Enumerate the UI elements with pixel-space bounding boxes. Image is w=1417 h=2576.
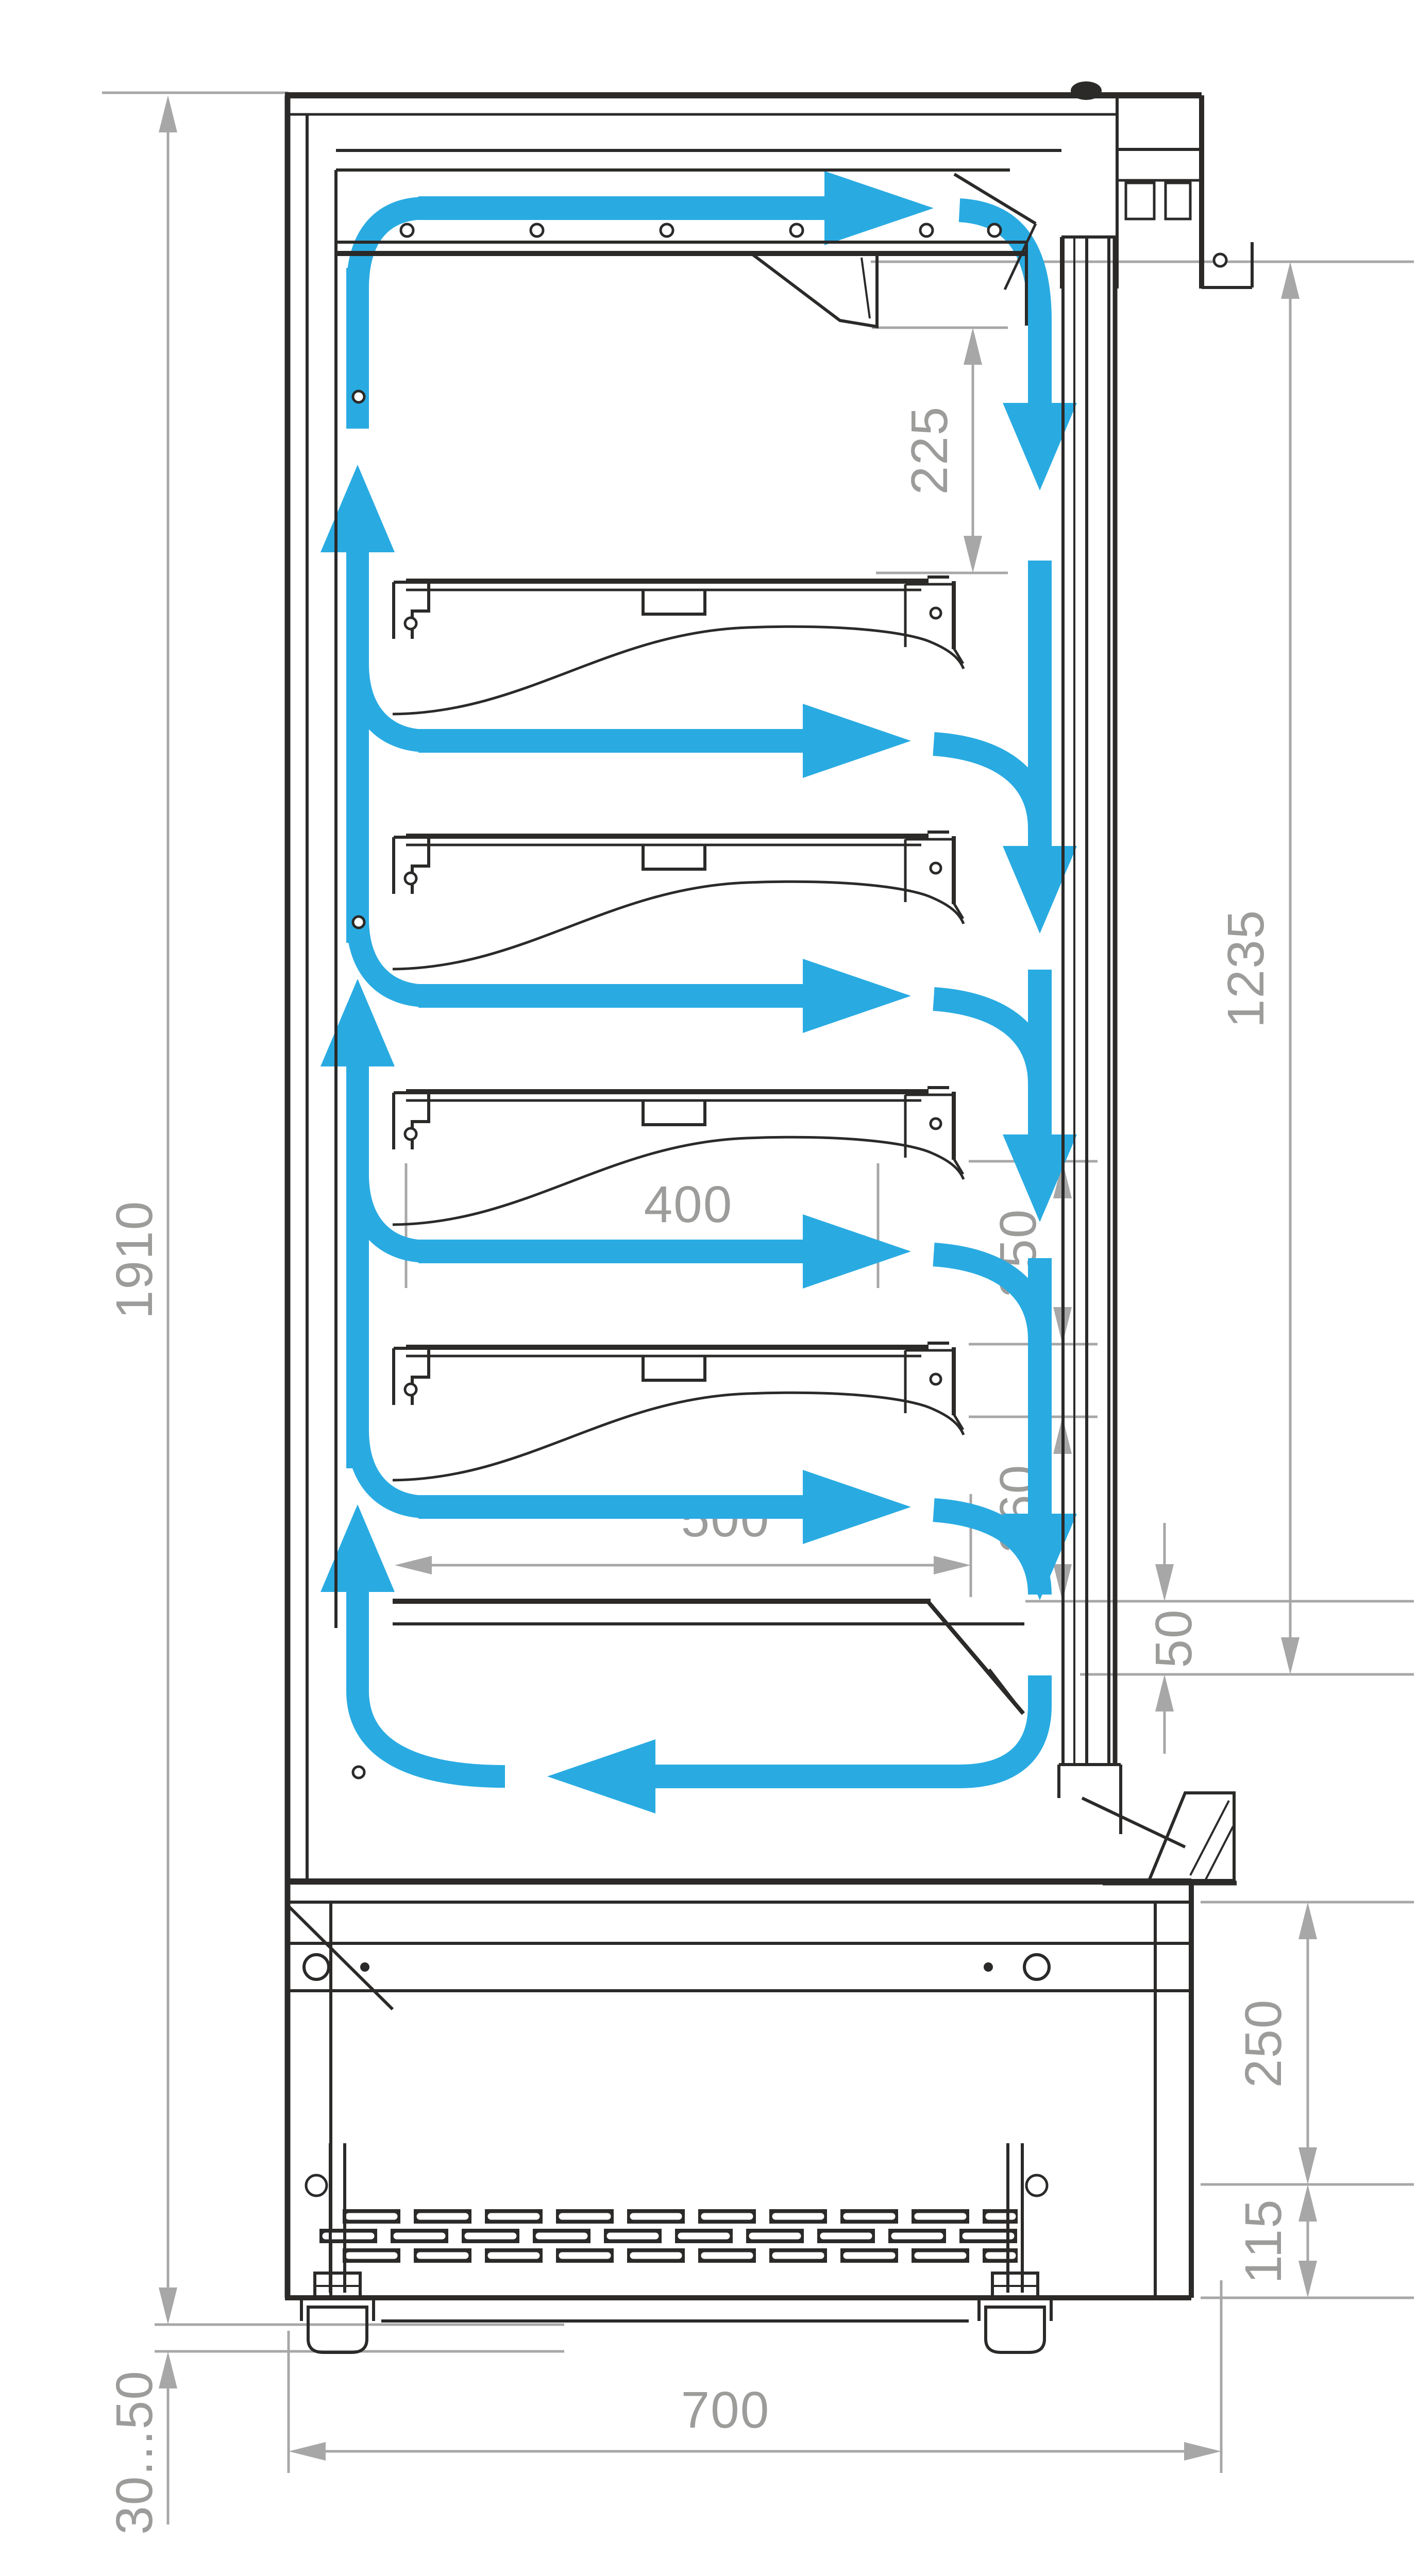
arrow-up-icon xyxy=(320,465,395,552)
bolt-icon xyxy=(306,2175,327,2196)
dimension-label: 30...50 xyxy=(106,2370,163,2535)
glass-door xyxy=(1063,237,1115,1765)
canopy-light-baffle xyxy=(751,253,877,327)
dimension-base-height: 250 xyxy=(1201,1902,1414,2184)
dimension-layer: 1910 30...50 700 225 1235 xyxy=(102,93,1414,2535)
bolt-icon xyxy=(1026,2175,1047,2196)
airflow-supply-duct xyxy=(358,171,1040,320)
airflow-air-curtain xyxy=(1003,320,1077,1600)
dimension-foot-range: 30...50 xyxy=(106,2351,564,2535)
door-top-frame xyxy=(1061,81,1252,289)
shelf-1 xyxy=(393,577,964,714)
drawing-canvas: 1910 30...50 700 225 1235 xyxy=(0,0,1417,2576)
dimension-label: 1910 xyxy=(106,1200,163,1319)
dimension-label: 400 xyxy=(644,1176,733,1233)
dimension-label: 250 xyxy=(1235,1999,1292,2088)
structure-layer xyxy=(285,81,1252,2352)
arrow-down-icon xyxy=(1003,403,1077,490)
dimension-label: 1235 xyxy=(1217,909,1275,1028)
bolt-icon xyxy=(304,1955,329,1979)
arrow-right-icon xyxy=(824,171,934,245)
dimension-label: 50 xyxy=(1145,1608,1203,1668)
arrow-left-icon xyxy=(547,1739,655,1814)
corner-brace xyxy=(289,1906,393,2009)
airflow-layer xyxy=(320,171,1077,1814)
rivet-icon xyxy=(360,1962,369,1972)
dimension-return-gap: 50 xyxy=(1145,1523,1203,1754)
cross-section-diagram: 1910 30...50 700 225 1235 xyxy=(0,0,1417,2576)
dimension-canopy-to-shelf: 225 xyxy=(872,328,1008,573)
shelf-2 xyxy=(393,832,964,969)
airflow-shelf-1 xyxy=(358,664,1040,828)
vent-grille xyxy=(319,2216,1018,2256)
dimension-label: 225 xyxy=(901,406,958,495)
airflow-return xyxy=(358,1675,1040,1814)
arrow-down-icon xyxy=(1003,846,1077,934)
hinge-pin-icon xyxy=(1071,81,1102,100)
dimension-vent-height: 115 xyxy=(1201,2198,1414,2298)
door-bottom-frame xyxy=(1059,1765,1237,1883)
shelf-4 xyxy=(393,1343,964,1480)
dimension-label: 115 xyxy=(1235,2198,1292,2283)
bottom-deck xyxy=(393,1601,1024,1714)
dimension-overall-depth: 700 xyxy=(289,2280,1221,2473)
bolt-icon xyxy=(1024,1955,1049,1979)
dimension-label: 700 xyxy=(681,2381,770,2439)
rivet-icon xyxy=(984,1962,993,1972)
airflow-shelf-2 xyxy=(358,919,1040,1083)
airflow-shelf-4 xyxy=(358,1430,1040,1595)
arrow-up-icon xyxy=(320,1504,395,1592)
